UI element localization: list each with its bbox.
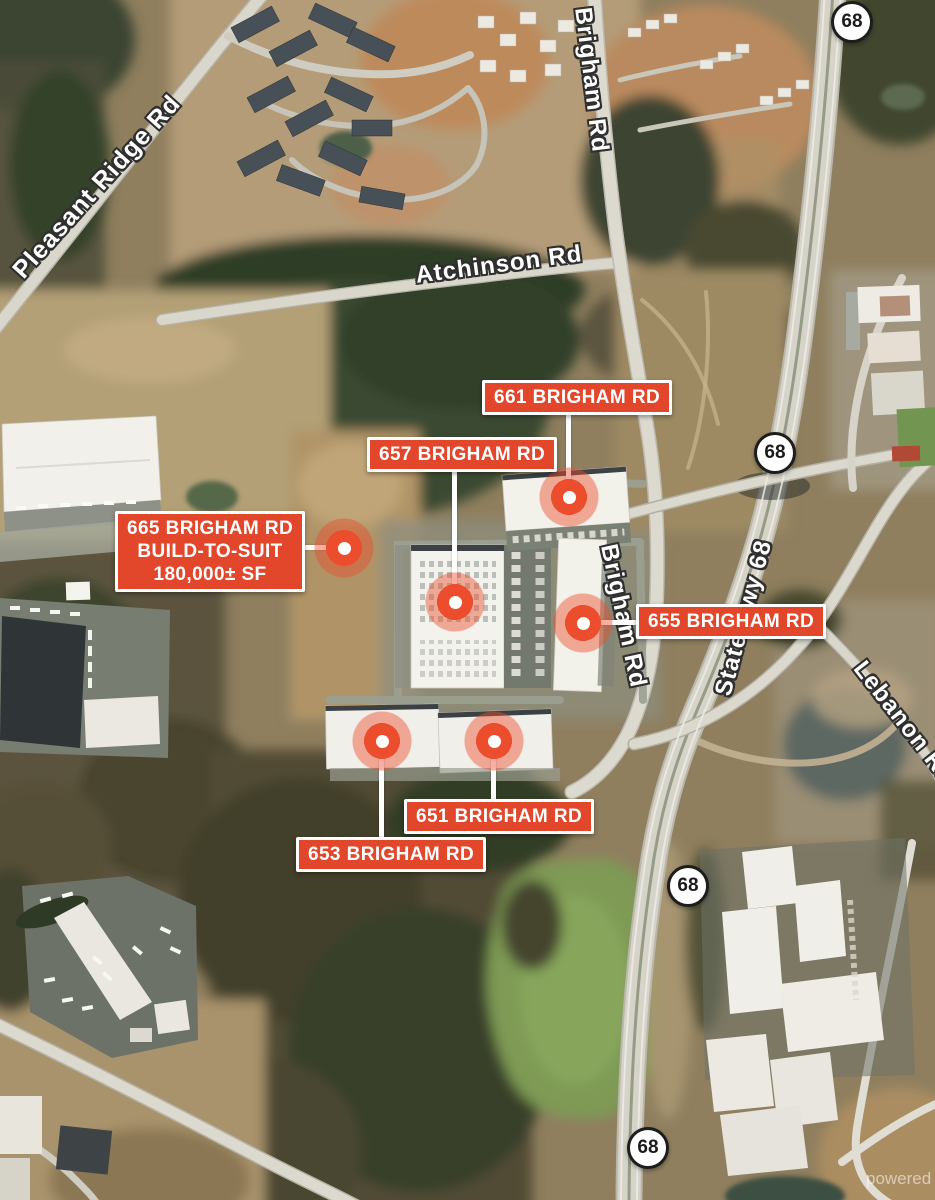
- route-68-shield-mid: 68: [667, 865, 709, 907]
- marker-661-brigham[interactable]: [538, 466, 600, 528]
- route-number: 68: [637, 1137, 658, 1159]
- property-label-661[interactable]: 661 BRIGHAM RD: [482, 380, 672, 415]
- property-label-657[interactable]: 657 BRIGHAM RD: [367, 437, 557, 472]
- dark-roof-warehouse: [0, 598, 170, 758]
- property-label-653[interactable]: 653 BRIGHAM RD: [296, 837, 486, 872]
- property-label-665[interactable]: 665 BRIGHAM RD BUILD-TO-SUIT 180,000± SF: [115, 511, 305, 592]
- route-68-shield-bottom: 68: [627, 1127, 669, 1169]
- marker-653-brigham[interactable]: [351, 710, 413, 772]
- marker-655-brigham[interactable]: [552, 592, 614, 654]
- aerial-property-map: Pleasant Ridge Rd Brigham Rd Atchinson R…: [0, 0, 935, 1200]
- route-68-shield-top: 68: [831, 1, 873, 43]
- route-number: 68: [677, 875, 698, 897]
- route-68-shield-interchange: 68: [754, 432, 796, 474]
- marker-651-brigham[interactable]: [463, 710, 525, 772]
- property-label-655[interactable]: 655 BRIGHAM RD: [636, 604, 826, 639]
- property-665-line3: 180,000± SF: [127, 563, 293, 586]
- route-number: 68: [841, 11, 862, 33]
- property-label-651[interactable]: 651 BRIGHAM RD: [404, 799, 594, 834]
- route-number: 68: [764, 442, 785, 464]
- marker-665-brigham[interactable]: [313, 517, 375, 579]
- property-665-line1: 665 BRIGHAM RD: [127, 518, 293, 539]
- map-watermark: powered b: [866, 1169, 935, 1189]
- property-665-line2: BUILD-TO-SUIT: [127, 540, 293, 563]
- marker-657-brigham[interactable]: [424, 571, 486, 633]
